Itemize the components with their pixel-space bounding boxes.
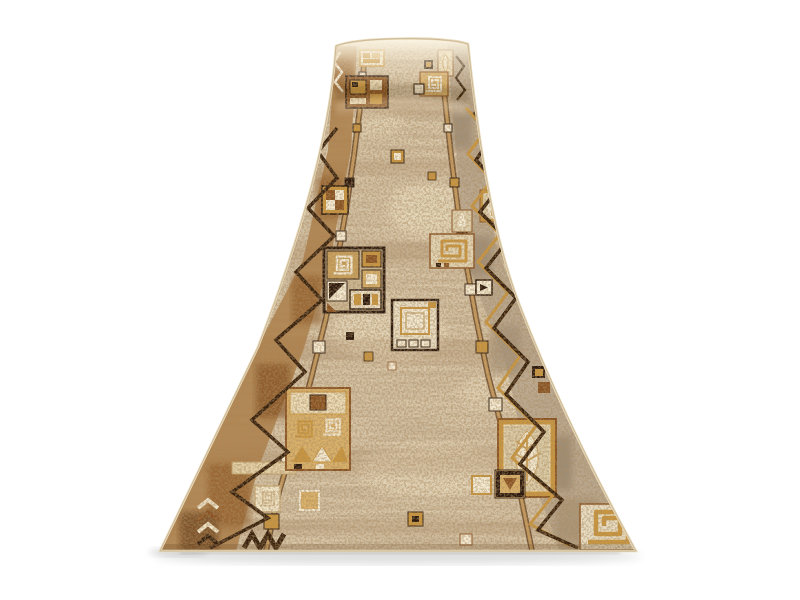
product-image-canvas	[0, 0, 800, 600]
rug-product-photo	[0, 0, 800, 600]
